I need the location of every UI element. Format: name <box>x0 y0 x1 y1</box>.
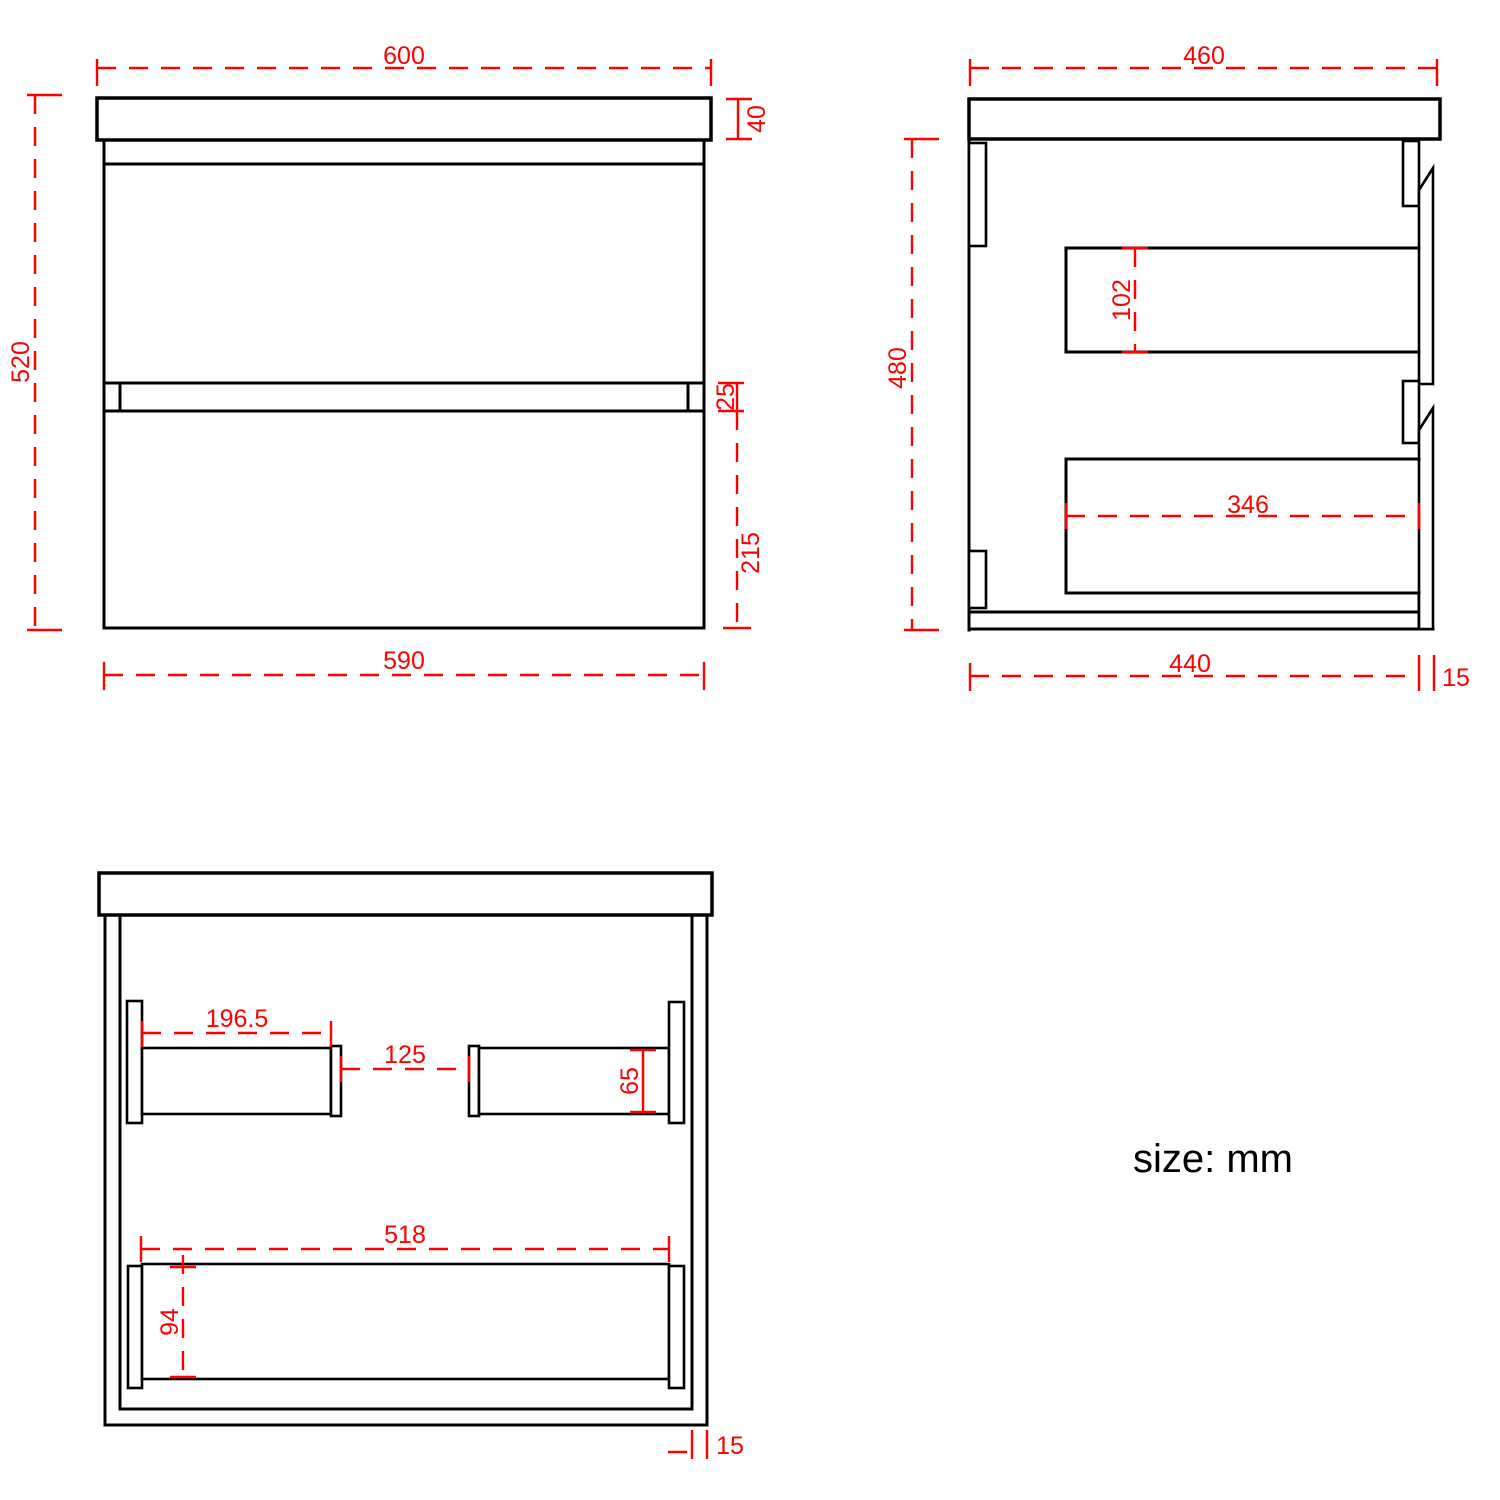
open-view: 196.5 125 65 518 94 <box>99 873 744 1460</box>
dim-front-drawer-gap: 25 <box>712 383 744 411</box>
side-view-cabinet-outline <box>969 99 1440 630</box>
dim-side-lower-drawer-depth: 346 <box>1066 491 1419 529</box>
dim-side-front-panel-thickness: 15 <box>1434 655 1470 692</box>
side-upper-drawer-front <box>1419 168 1433 384</box>
dim-label-125: 125 <box>384 1041 426 1069</box>
dim-open-center-gap: 125 <box>341 1041 469 1082</box>
dim-side-cabinet-depth: 440 <box>970 650 1419 691</box>
vanity-dimension-drawing: 600 40 25 215 590 <box>0 0 1500 1500</box>
dim-label-25: 25 <box>712 383 740 411</box>
front-view: 600 40 25 215 590 <box>7 42 771 690</box>
dim-label-590: 590 <box>383 647 425 675</box>
dim-label-102: 102 <box>1108 279 1136 321</box>
dim-label-520: 520 <box>7 341 35 383</box>
technical-drawing-page: 600 40 25 215 590 <box>0 0 1500 1500</box>
side-lower-rail <box>1403 381 1419 443</box>
dim-front-cabinet-width: 590 <box>104 647 704 690</box>
front-countertop <box>97 98 711 140</box>
dim-front-overall-height: 520 <box>7 95 62 630</box>
open-lower-right-bracket <box>669 1266 684 1388</box>
unit-note: size: mm <box>1133 1137 1293 1181</box>
dim-label-65: 65 <box>616 1067 644 1095</box>
open-upper-left-rail-endcap <box>331 1046 341 1116</box>
dim-open-lower-rail-length: 518 <box>141 1221 669 1262</box>
side-back-top-bracket <box>969 143 986 246</box>
side-lower-drawer-front <box>1419 408 1433 629</box>
dim-label-40: 40 <box>743 105 771 133</box>
open-upper-right-rail-endcap <box>469 1046 479 1116</box>
dim-side-upper-drawer-height: 102 <box>1108 248 1148 352</box>
open-view-cabinet-outline <box>99 873 712 1425</box>
dim-open-left-rail-length: 196.5 <box>142 1005 331 1047</box>
dim-front-countertop-height: 40 <box>726 99 771 139</box>
dim-label-440: 440 <box>1169 650 1211 678</box>
side-back-bottom-bracket <box>969 551 986 608</box>
dim-side-cabinet-height: 480 <box>884 139 939 630</box>
side-lower-drawer-box <box>1066 459 1419 593</box>
open-lower-left-bracket <box>128 1266 142 1388</box>
dim-side-overall-depth: 460 <box>970 42 1437 86</box>
side-view: 460 480 102 346 440 <box>884 42 1470 692</box>
dim-label-94: 94 <box>156 1308 184 1336</box>
dim-label-15-side: 15 <box>1442 664 1470 692</box>
open-upper-left-rail <box>142 1048 331 1114</box>
open-countertop <box>99 873 712 915</box>
dim-front-lower-drawer-height: 215 <box>723 411 765 628</box>
side-countertop <box>969 99 1440 139</box>
open-lower-rail <box>142 1264 669 1379</box>
dim-label-600: 600 <box>383 42 425 70</box>
dim-label-196-5: 196.5 <box>206 1005 269 1033</box>
dim-front-overall-width: 600 <box>97 42 711 86</box>
front-view-cabinet-outline <box>97 98 711 628</box>
open-upper-left-bracket <box>127 1001 142 1123</box>
side-upper-rail <box>1403 141 1419 206</box>
dim-label-215: 215 <box>737 532 765 574</box>
dim-label-460: 460 <box>1183 42 1225 70</box>
dim-label-15-open: 15 <box>716 1432 744 1460</box>
dim-label-346: 346 <box>1227 491 1269 519</box>
open-upper-right-bracket <box>669 1002 684 1123</box>
dim-label-480: 480 <box>884 347 912 389</box>
dim-label-518: 518 <box>384 1221 426 1249</box>
dim-open-side-panel-thickness: 15 <box>668 1430 744 1460</box>
